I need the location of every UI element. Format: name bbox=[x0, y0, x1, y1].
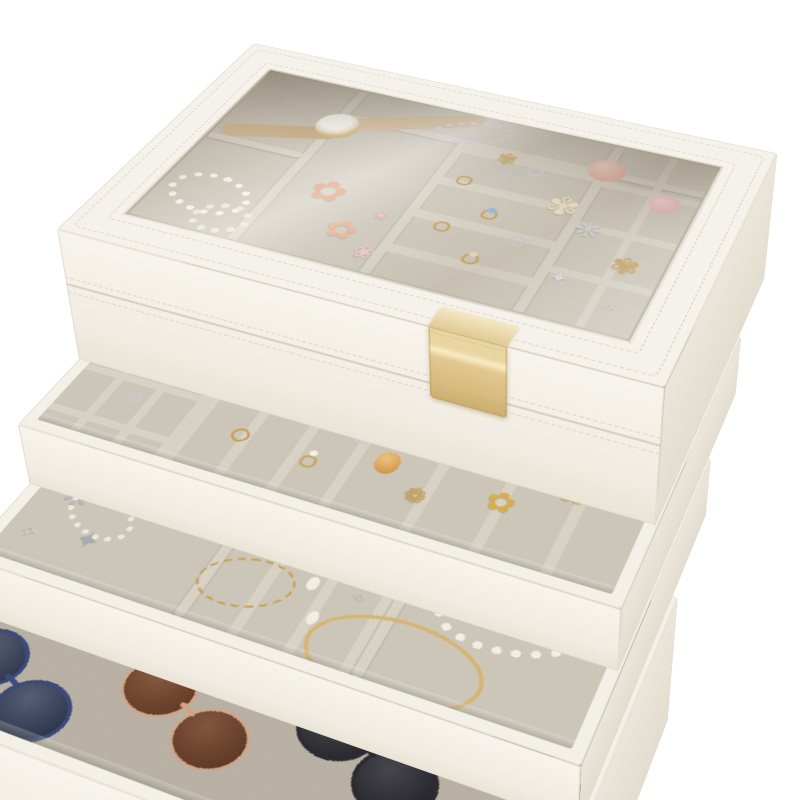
silver-leaf-brooch: ❋ bbox=[567, 218, 606, 244]
gold-flower-earring: ✿ bbox=[479, 486, 522, 519]
gold-foliage-earring: ✾ bbox=[492, 150, 521, 167]
gold-ring-2 bbox=[429, 220, 452, 233]
silver-hoop bbox=[124, 392, 144, 405]
gold-ring bbox=[453, 174, 475, 186]
product-photo: ✿✿❀❀✾✾❋✾✦✧ bbox=[0, 0, 800, 800]
pearl-drop-earring bbox=[303, 576, 323, 593]
gold-ring bbox=[228, 427, 254, 444]
pink-flower-cluster: ❀ bbox=[348, 241, 381, 261]
silver-bead-bracelet bbox=[430, 120, 515, 146]
peach-sphere bbox=[583, 157, 632, 185]
silver-ring-2 bbox=[507, 235, 528, 248]
gold-cluster-earring: ❁ bbox=[398, 483, 431, 508]
crystal-cluster-3: ✧ bbox=[12, 520, 44, 542]
pink-flower: ❀ bbox=[370, 209, 392, 222]
silver-ring bbox=[488, 171, 510, 183]
crystal-pile: ✦ bbox=[544, 269, 573, 288]
gold-leaf-brooch: ✾ bbox=[604, 253, 644, 280]
pink-sphere bbox=[645, 193, 685, 217]
coral-fan-brooch-2: ✿ bbox=[317, 215, 366, 245]
coral-fan-brooch: ✿ bbox=[299, 176, 356, 209]
diamond-ring bbox=[526, 166, 546, 177]
pink-gem: ✧ bbox=[595, 299, 619, 316]
scene: ✿✿❀❀✾✾❋✾✦✧ bbox=[0, 0, 800, 800]
pearl-ring bbox=[296, 453, 320, 469]
amber-gem bbox=[370, 450, 406, 476]
silver-charm: ✧ bbox=[347, 589, 371, 608]
